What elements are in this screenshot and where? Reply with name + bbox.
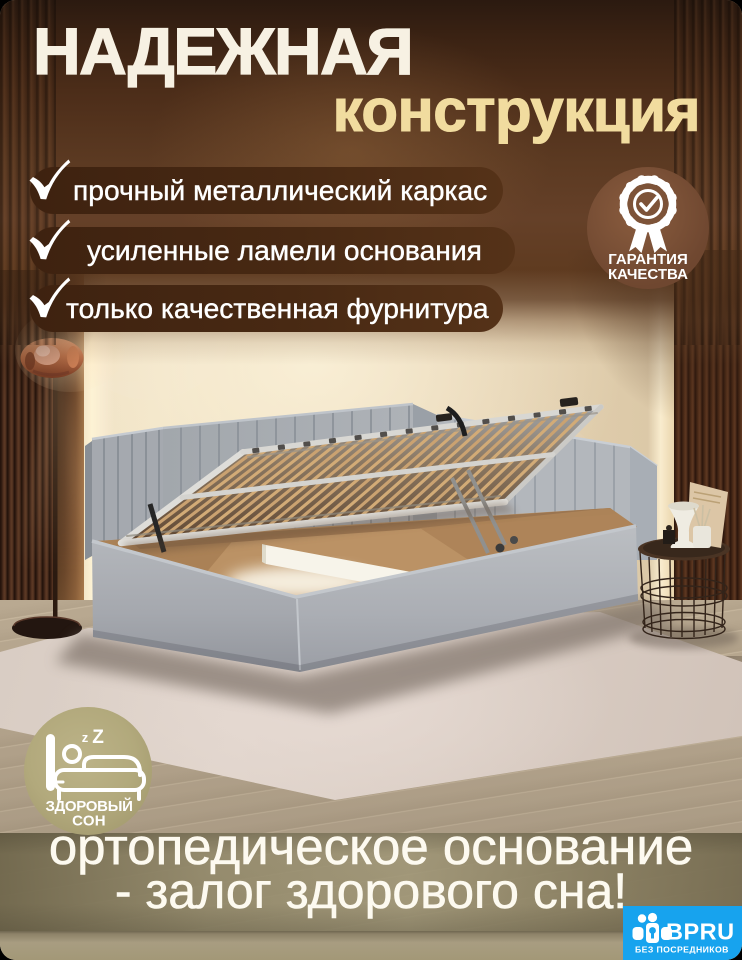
svg-text:BPRU: BPRU: [666, 919, 735, 945]
svg-text:КАЧЕСТВА: КАЧЕСТВА: [608, 266, 688, 283]
svg-text:z: z: [82, 730, 89, 745]
svg-text:СОН: СОН: [72, 813, 106, 830]
svg-text:БЕЗ ПОСРЕДНИКОВ: БЕЗ ПОСРЕДНИКОВ: [635, 945, 729, 955]
svg-text:Z: Z: [92, 727, 104, 748]
